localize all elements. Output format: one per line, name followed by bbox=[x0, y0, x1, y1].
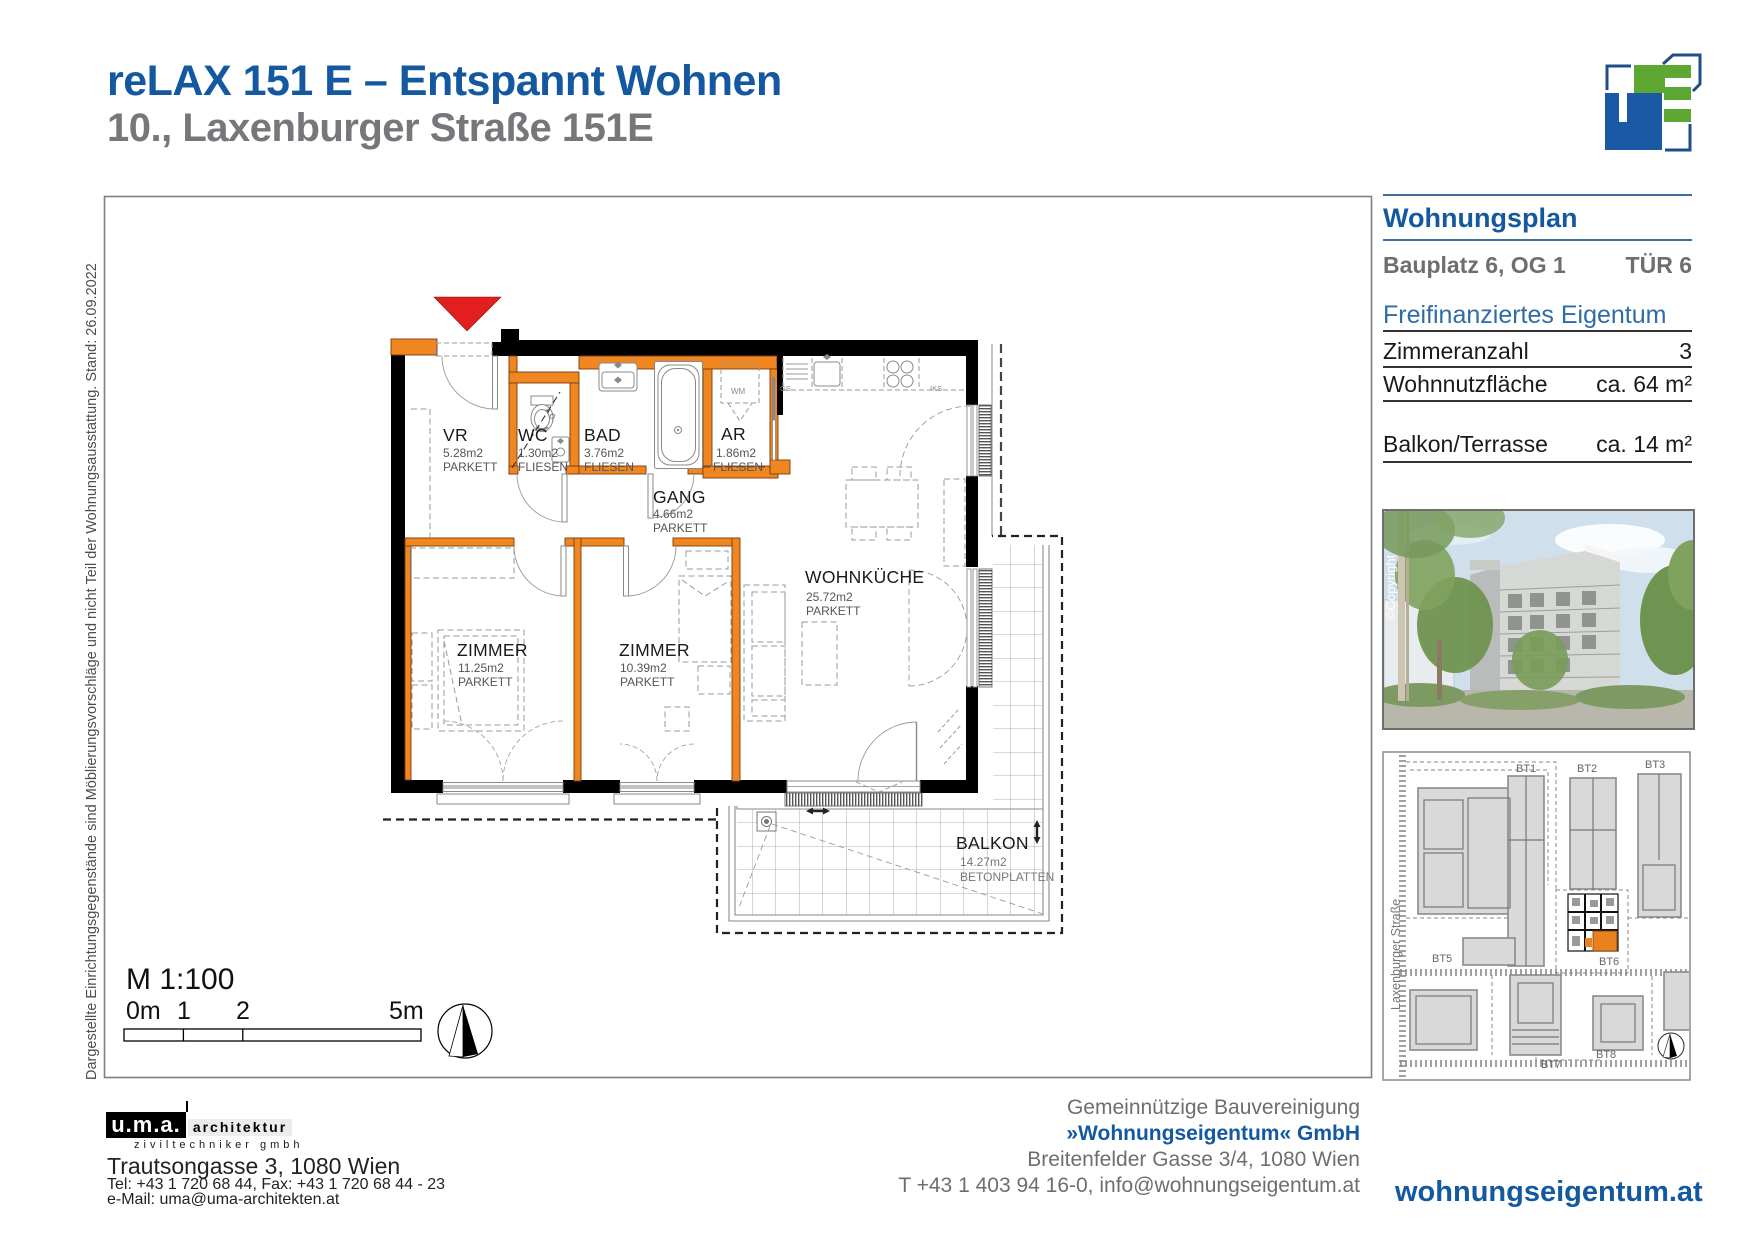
svg-text:2: 2 bbox=[236, 997, 250, 1025]
svg-text:ZIMMER: ZIMMER bbox=[457, 640, 528, 660]
svg-text:WOHNKÜCHE: WOHNKÜCHE bbox=[805, 567, 924, 587]
svg-text:PARKETT: PARKETT bbox=[806, 604, 861, 618]
svg-text:M 1:100: M 1:100 bbox=[126, 963, 234, 996]
svg-text:BT2: BT2 bbox=[1577, 763, 1597, 775]
svg-text:BT7: BT7 bbox=[1541, 1059, 1561, 1071]
svg-text:PARKETT: PARKETT bbox=[620, 675, 675, 689]
svg-text:BALKON: BALKON bbox=[956, 833, 1029, 853]
svg-text:5m: 5m bbox=[389, 997, 424, 1025]
svg-text:5.28m2: 5.28m2 bbox=[443, 446, 483, 460]
svg-text:WM: WM bbox=[731, 387, 746, 396]
svg-text:AR: AR bbox=[721, 424, 746, 444]
svg-text:14.27m2: 14.27m2 bbox=[960, 855, 1007, 869]
svg-text:10.39m2: 10.39m2 bbox=[620, 661, 667, 675]
svg-text:4.66m2: 4.66m2 bbox=[653, 507, 693, 521]
svg-text:PARKETT: PARKETT bbox=[443, 460, 498, 474]
svg-text:VR: VR bbox=[443, 425, 468, 445]
svg-text:©Copyright: ©Copyright bbox=[1383, 554, 1398, 620]
svg-text:BAD: BAD bbox=[584, 425, 621, 445]
svg-text:BETONPLATTEN: BETONPLATTEN bbox=[960, 870, 1054, 884]
svg-text:11.25m2: 11.25m2 bbox=[458, 661, 504, 675]
svg-text:FLIESEN: FLIESEN bbox=[518, 460, 568, 474]
svg-text:BT6: BT6 bbox=[1599, 956, 1619, 968]
svg-text:ZIMMER: ZIMMER bbox=[619, 640, 690, 660]
svg-text:BT5: BT5 bbox=[1432, 953, 1452, 965]
svg-text:GS: GS bbox=[780, 384, 791, 393]
svg-text:1.86m2: 1.86m2 bbox=[716, 446, 756, 460]
svg-text:Laxenburger Straße: Laxenburger Straße bbox=[1389, 899, 1403, 1010]
svg-text:0m: 0m bbox=[126, 997, 161, 1025]
svg-text:BT1: BT1 bbox=[1516, 763, 1536, 775]
svg-text:1.30m2: 1.30m2 bbox=[518, 446, 558, 460]
svg-text:PARKETT: PARKETT bbox=[458, 675, 513, 689]
svg-text:1: 1 bbox=[177, 997, 191, 1025]
svg-text:BT3: BT3 bbox=[1645, 759, 1665, 771]
svg-text:WC: WC bbox=[518, 425, 548, 445]
svg-text:FLIESEN: FLIESEN bbox=[584, 460, 634, 474]
svg-text:25.72m2: 25.72m2 bbox=[806, 590, 853, 604]
svg-text:BT8: BT8 bbox=[1596, 1049, 1616, 1061]
svg-text:3.76m2: 3.76m2 bbox=[584, 446, 624, 460]
svg-text:PARKETT: PARKETT bbox=[653, 521, 708, 535]
svg-text:GANG: GANG bbox=[653, 487, 706, 507]
svg-text:IKS: IKS bbox=[930, 384, 942, 393]
